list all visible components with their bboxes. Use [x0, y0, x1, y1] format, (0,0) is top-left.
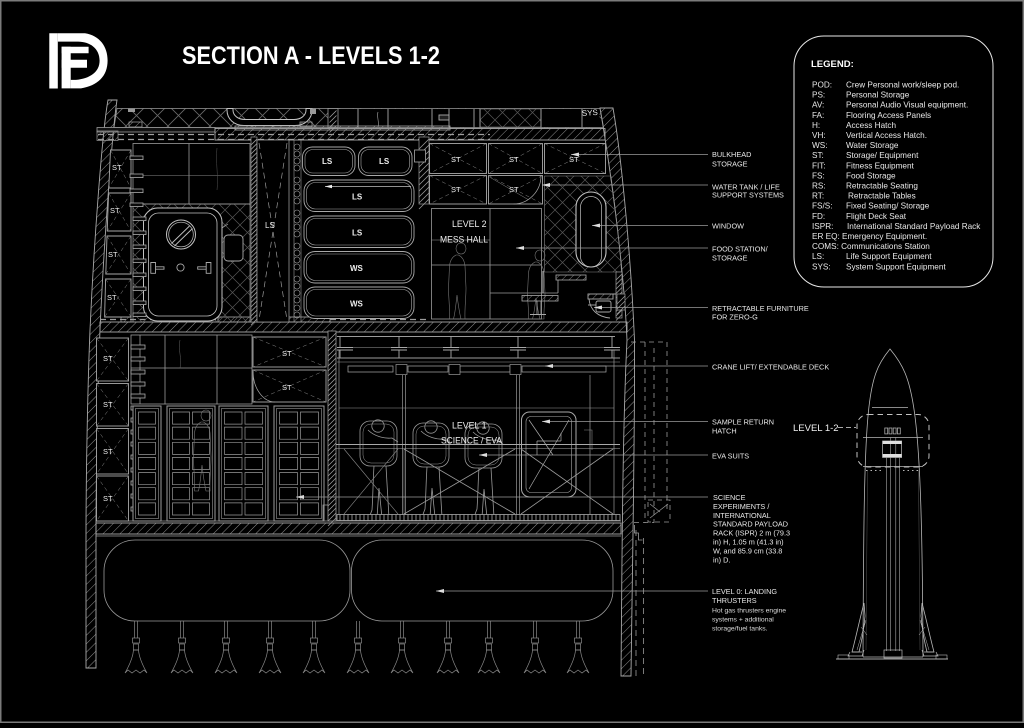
svg-text:ST: ST [509, 155, 519, 164]
svg-text:ST: ST [282, 383, 292, 392]
svg-text:WINDOW: WINDOW [712, 222, 744, 231]
svg-text:in) H, 1.05 m (41.3 in): in) H, 1.05 m (41.3 in) [713, 538, 784, 547]
svg-text:ER EQ: Emergency Equipment.: ER EQ: Emergency Equipment. [812, 232, 927, 241]
svg-text:STORAGE: STORAGE [712, 254, 748, 263]
svg-text:SECTION A - LEVELS 1-2: SECTION A - LEVELS 1-2 [182, 42, 440, 70]
svg-text:RACK (ISPR) 2 m (79.3: RACK (ISPR) 2 m (79.3 [713, 529, 790, 538]
svg-text:LS: LS [265, 221, 275, 230]
svg-text:ST: ST [103, 400, 113, 409]
svg-text:LS: LS [322, 157, 333, 166]
svg-text:FOR ZERO-G: FOR ZERO-G [712, 313, 758, 322]
svg-text:EVA SUITS: EVA SUITS [712, 452, 749, 461]
svg-text:HATCH: HATCH [712, 427, 737, 436]
svg-text:ST: ST [103, 447, 113, 456]
svg-text:LEVEL 2: LEVEL 2 [452, 219, 487, 230]
svg-text:LEVEL 0: LANDING: LEVEL 0: LANDING [712, 587, 777, 596]
svg-text:LS: LS [352, 229, 363, 238]
svg-text:WS: WS [350, 300, 364, 309]
svg-text:ST: ST [103, 494, 113, 503]
svg-text:ST: ST [509, 185, 519, 194]
svg-text:COMS: Communications Station: COMS: Communications Station [812, 242, 930, 251]
svg-text:FOOD STATION/: FOOD STATION/ [712, 245, 769, 254]
svg-text:SCIENCE: SCIENCE [713, 493, 746, 502]
svg-text:LS: LS [352, 193, 363, 202]
svg-text:W, and 85.9 cm (33.8: W, and 85.9 cm (33.8 [713, 546, 782, 555]
svg-text:ST: ST [108, 250, 118, 259]
svg-text:THRUSTERS: THRUSTERS [712, 596, 757, 605]
svg-text:ST: ST [282, 349, 292, 358]
svg-text:WS:Water Storage: WS:Water Storage [812, 141, 899, 150]
svg-text:FS:Food Storage: FS:Food Storage [812, 171, 896, 180]
svg-text:LEVEL 1-2: LEVEL 1-2 [793, 423, 839, 434]
svg-text:STORAGE: STORAGE [712, 160, 748, 169]
svg-text:EXPERIMENTS /: EXPERIMENTS / [713, 502, 770, 511]
svg-text:ST: ST [112, 163, 122, 172]
svg-text:SUPPORT SYSTEMS: SUPPORT SYSTEMS [712, 191, 784, 200]
svg-text:BULKHEAD: BULKHEAD [712, 150, 751, 159]
svg-text:LS: LS [379, 157, 390, 166]
svg-text:SAMPLE RETURN: SAMPLE RETURN [712, 418, 774, 427]
svg-text:LEGEND:: LEGEND: [811, 59, 854, 70]
svg-text:LEVEL 1: LEVEL 1 [452, 421, 487, 432]
svg-text:Hot gas thrusters engine: Hot gas thrusters engine [712, 608, 786, 615]
svg-text:CRANE LIFT/ EXTENDABLE DECK: CRANE LIFT/ EXTENDABLE DECK [712, 363, 829, 372]
svg-text:ST: ST [451, 155, 461, 164]
svg-text:systems + additional: systems + additional [712, 617, 774, 624]
svg-text:in) D.: in) D. [713, 555, 730, 564]
svg-text:ST: ST [110, 206, 120, 215]
svg-text:storage/fuel tanks.: storage/fuel tanks. [712, 626, 768, 633]
svg-text:STANDARD PAYLOAD: STANDARD PAYLOAD [713, 520, 788, 529]
svg-text:INTERNATIONAL: INTERNATIONAL [713, 511, 771, 520]
svg-text:SYS: SYS [582, 108, 599, 118]
svg-text:ST: ST [103, 354, 113, 363]
svg-text:ST: ST [569, 155, 579, 164]
svg-text:ST: ST [107, 293, 117, 302]
svg-text:ST: ST [451, 185, 461, 194]
svg-text:WS: WS [350, 264, 364, 273]
svg-text:FS/S:Fixed Seating/ Storage: FS/S:Fixed Seating/ Storage [812, 202, 930, 211]
